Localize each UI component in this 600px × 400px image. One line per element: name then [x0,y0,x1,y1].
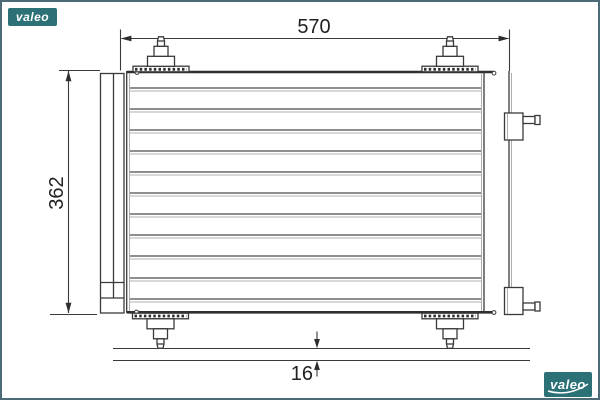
fin-row [129,88,482,91]
logo-swoosh-icon [544,372,592,397]
fin-row [129,278,482,281]
mounting-bracket-top [133,37,189,72]
brand-logo-text: valeo [16,10,49,24]
fin-row [129,299,482,302]
right-side-plate [509,71,512,315]
fin-row [129,256,482,259]
refrigerant-port-top [505,113,541,140]
fin-row [129,151,482,154]
port-pin-icon [523,117,535,124]
fin-row [129,130,482,133]
fin-row [129,214,482,217]
mounting-bracket-bottom [133,313,189,348]
mounting-bracket-top [422,37,478,72]
fin-row [129,172,482,175]
dimension-width-label: 570 [297,16,330,38]
condenser-core [127,71,496,315]
refrigerant-port-bottom [505,288,541,315]
dimension-depth: 16 [113,332,530,386]
port-pin-icon [523,303,535,310]
fin-row [129,193,482,196]
brand-logo-top-left: valeo [8,8,57,26]
condenser-drawing: 570 362 [0,0,600,400]
technical-drawing-page: 570 362 [0,0,600,400]
mounting-bracket-bottom [422,313,478,348]
brand-logo-bottom-right: valeo [544,372,592,397]
receiver-drier-tank [101,74,125,314]
fin-row [129,235,482,238]
fin-rows [129,88,482,302]
fin-row [129,109,482,112]
dimension-height: 362 [46,71,100,315]
dimension-depth-label: 16 [291,363,313,385]
dimension-height-label: 362 [46,176,68,209]
